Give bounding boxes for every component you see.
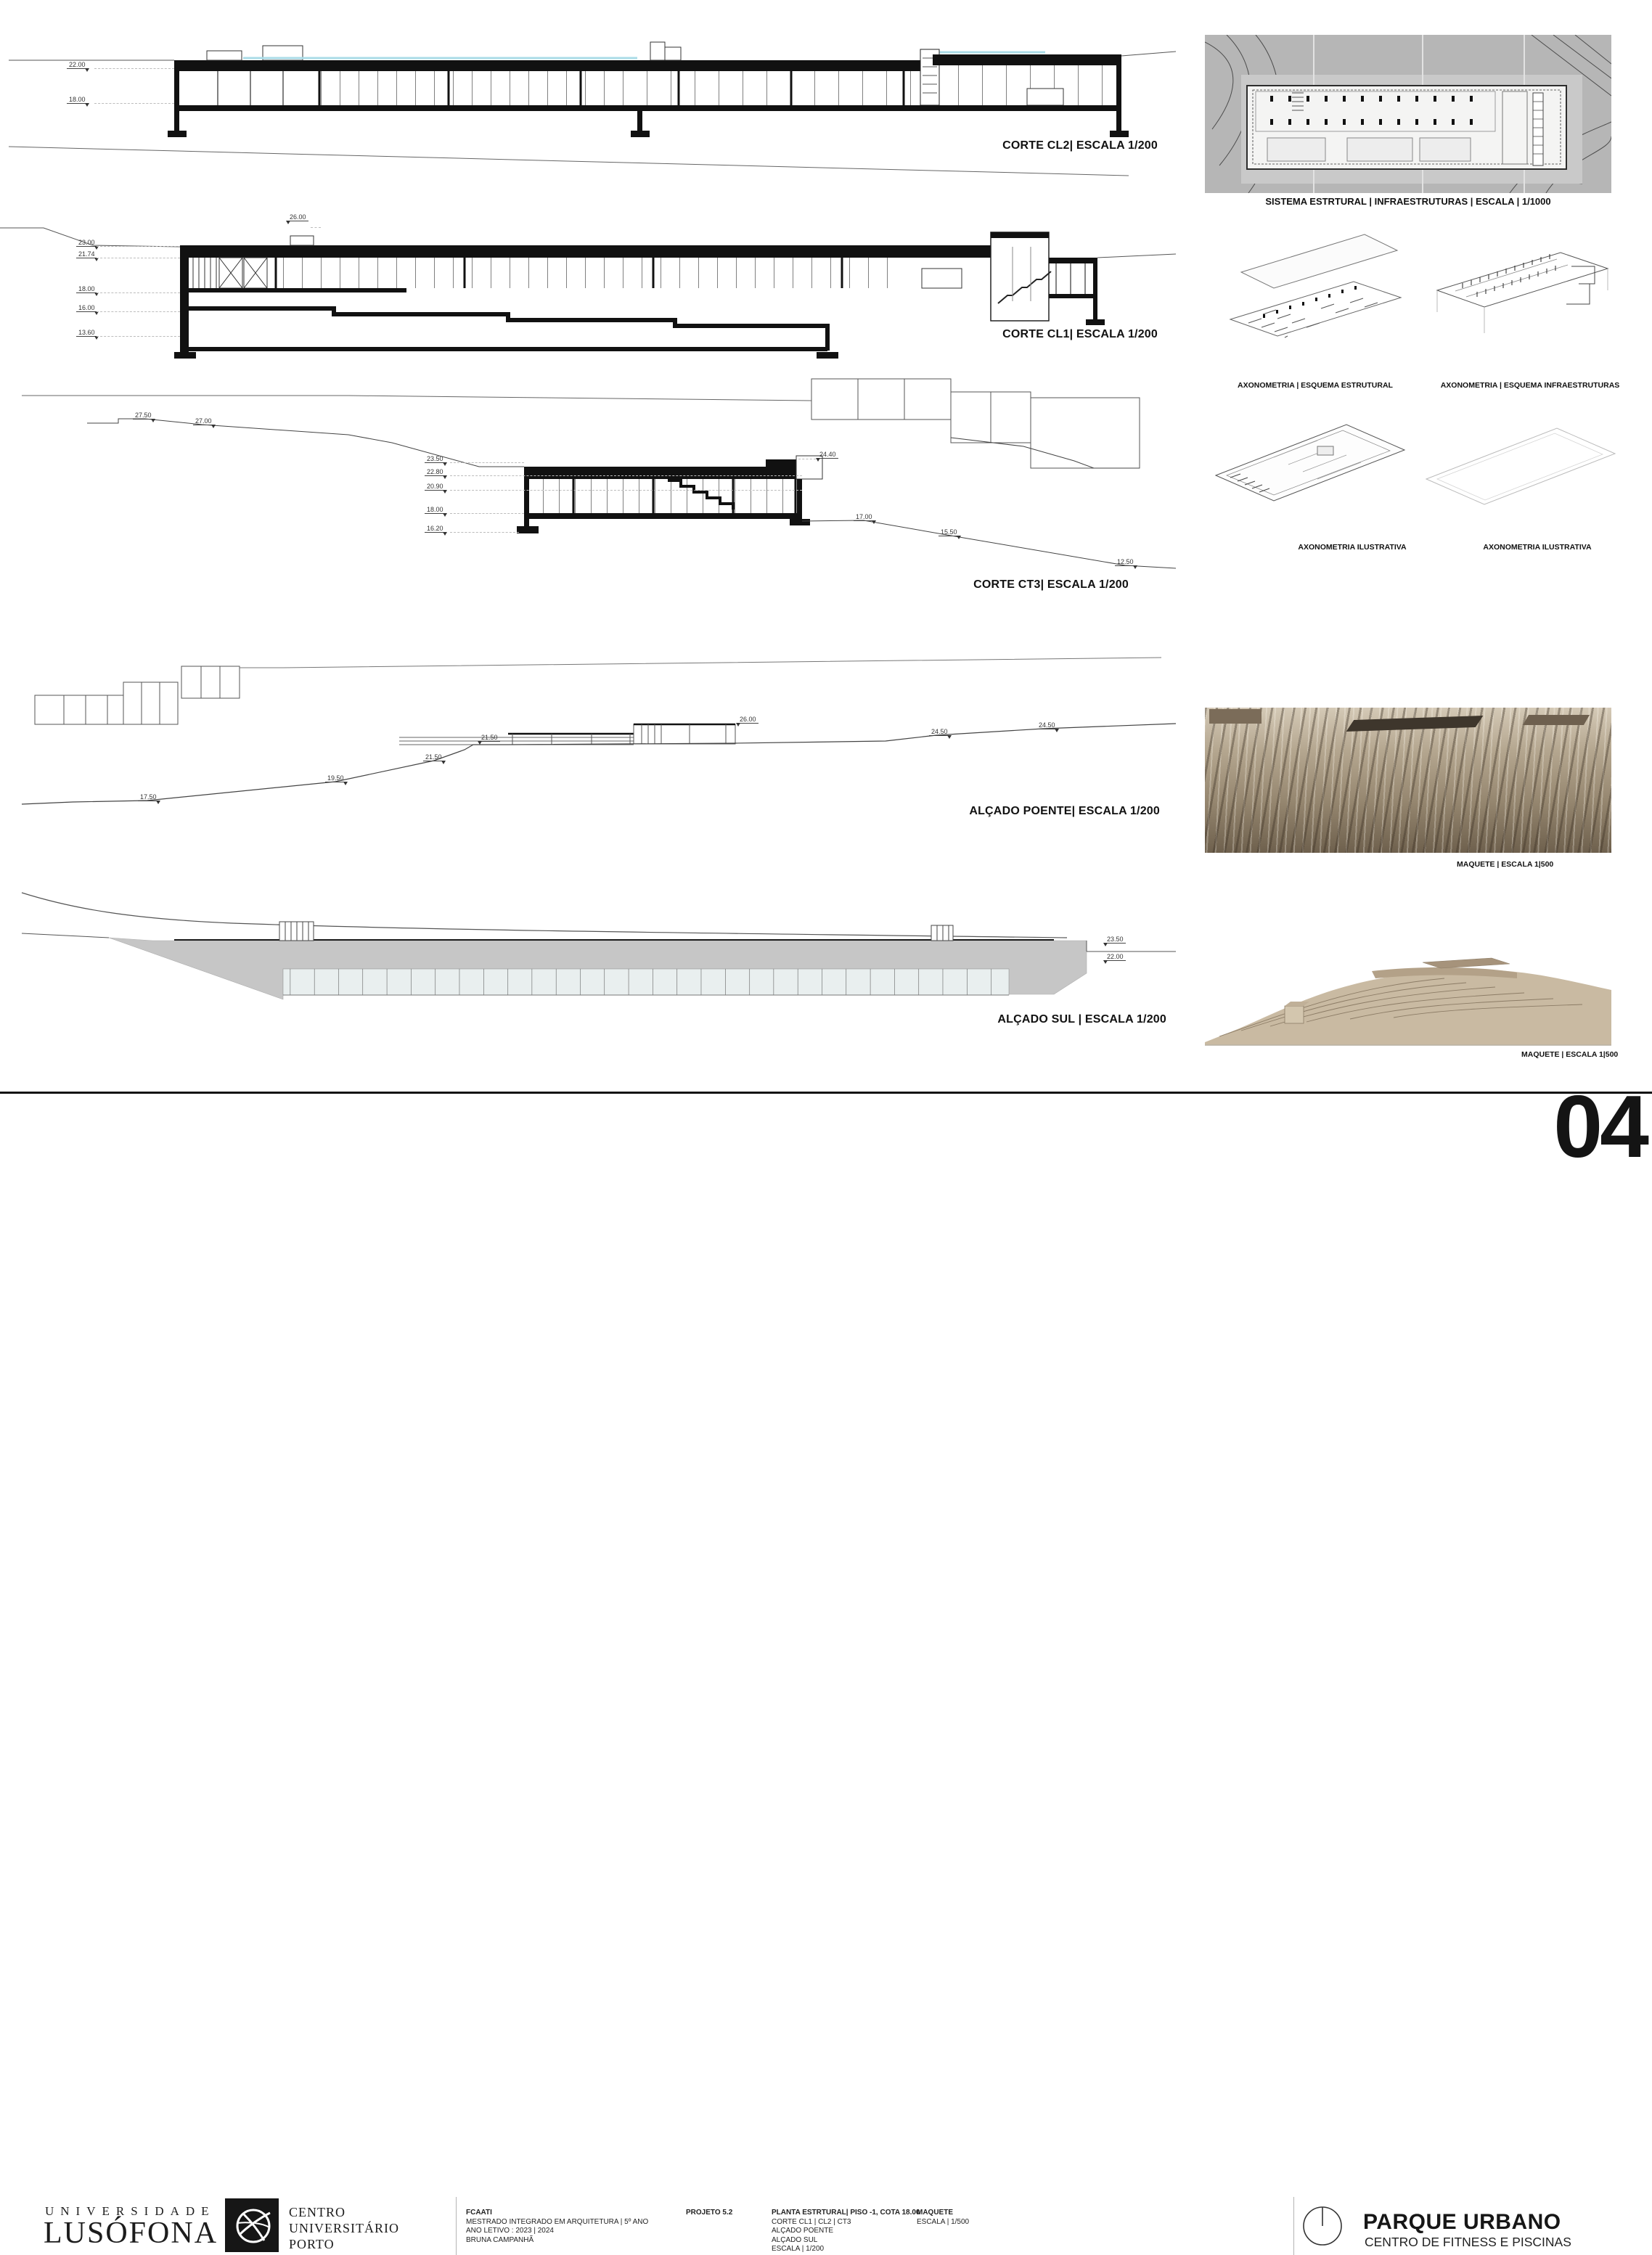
terrain-mark: 17.00 [854,513,875,521]
alcado-sul-drawing [0,871,1176,1060]
elevation-mark: 21.74 [76,250,97,258]
sistema-label: SISTEMA ESTRTURAL | INFRAESTRUTURAS | ES… [1265,196,1550,207]
model-terrace [1209,709,1262,724]
model-info-scale: ESCALA | 1/500 [917,2218,969,2227]
model-photo-1 [1205,708,1611,853]
elevation-mark: 26.00 [287,213,308,221]
model-info: MAQUETE ESCALA | 1/500 [917,2209,969,2227]
terrain-mark: 19.50 [325,774,346,782]
axonometria-ilustrativa-1 [1209,406,1412,541]
leader-line [94,103,174,104]
course-info: FCAATI MESTRADO INTEGRADO EM ARQUITETURA… [466,2209,648,2245]
leader-line [311,227,321,228]
elevation-mark: 23.50 [1105,936,1126,944]
elevation-mark: 23.50 [425,455,446,463]
leader-line [97,258,180,258]
elevation-mark: 22.00 [67,61,88,69]
axo-ilustrativa-1-label: AXONOMETRIA ILUSTRATIVA [1298,543,1406,552]
sheet-contents: PLANTA ESTRTURAL| PISO -1, COTA 18.00 CO… [772,2209,920,2254]
model-info-title: MAQUETE [917,2209,953,2217]
elevation-mark: 18.00 [67,96,88,104]
corte-ct3-drawing [0,377,1176,595]
terrain-mark: 21.50 [423,753,444,761]
terrain-mark: 15.50 [939,528,960,536]
leader-line [450,475,802,476]
model-roof-slab [1346,716,1482,732]
model-roof-slab [1523,715,1590,725]
leader-line [450,462,524,463]
elevation-mark: 16.00 [76,304,97,312]
elevation-mark: 16.20 [425,525,446,533]
corte-cl2-label: CORTE CL2| ESCALA 1/200 [1002,139,1158,152]
elevation-mark: 23.00 [76,239,97,247]
project-subtitle: CENTRO DE FITNESS E PISCINAS [1365,2235,1571,2250]
alcado-poente-label: ALÇADO POENTE| ESCALA 1/200 [969,805,1160,818]
sheet-number: 04 [1553,1086,1646,1167]
leader-line [798,459,816,459]
corte-cl1-label: CORTE CL1| ESCALA 1/200 [1002,328,1158,341]
axonometria-infraestruturas-diagram [1426,221,1615,367]
title-block: UNIVERSIDADE LUSÓFONA CENTRO UNIVERSITÁR… [0,1094,1652,1167]
elevation-mark: 18.00 [76,285,97,293]
maquete-2-label: MAQUETE | ESCALA 1|500 [1521,1050,1618,1059]
elevation-mark: 13.60 [76,329,97,337]
axo-estrutural-label: AXONOMETRIA | ESQUEMA ESTRUTURAL [1238,381,1393,390]
corte-ct3-label: CORTE CT3| ESCALA 1/200 [973,578,1129,592]
centro-universitario-porto: CENTRO UNIVERSITÁRIO PORTO [289,2204,399,2252]
sistema-estrutural-plan [1205,35,1611,193]
course-line: ANO LETIVO : 2023 | 2024 [466,2227,648,2236]
corte-cl2-drawing [0,22,1176,189]
terrain-mark: 12.50 [1115,558,1136,566]
axonometria-ilustrativa-2 [1415,406,1619,541]
corte-cl1-drawing [0,218,1176,363]
leader-line [450,490,802,491]
maquete-1-label: MAQUETE | ESCALA 1|500 [1457,860,1553,869]
project-title: PARQUE URBANO [1363,2210,1561,2235]
globe-icon [225,2198,279,2252]
axonometria-estrutural-diagram [1219,221,1408,367]
axo-infra-label: AXONOMETRIA | ESQUEMA INFRAESTRUTURAS [1441,381,1620,390]
terrain-mark: 24.50 [929,728,950,736]
elevation-mark: 22.00 [1105,953,1126,961]
project-number-text: PROJETO 5.2 [686,2209,732,2217]
university-name-line2: LUSÓFONA [44,2216,218,2251]
leader-line [97,311,180,312]
lusofona-globe-logo [225,2198,279,2252]
leader-line [97,336,180,337]
course-title: FCAATI [466,2209,492,2217]
course-line: MESTRADO INTEGRADO EM ARQUITETURA | 5º A… [466,2218,648,2227]
model-photo-2 [1205,920,1611,1047]
centro-line: UNIVERSITÁRIO [289,2220,399,2236]
model-mound [1205,920,1611,1047]
terrain-mark: 21.50 [479,734,500,742]
presentation-board: { "drawings": { "corte_cl2": { "label": … [0,0,1652,1167]
leader-line [450,513,524,514]
terrain-mark: 17.50 [138,793,159,801]
sheet-contents-line: ALÇADO SUL [772,2236,920,2246]
sheet-contents-title: PLANTA ESTRTURAL| PISO -1, COTA 18.00 [772,2209,920,2217]
terrain-mark: 26.00 [737,716,758,724]
sheet-contents-line: CORTE CL1 | CL2 | CT3 [772,2218,920,2227]
sheet-scale: ESCALA | 1/200 [772,2245,920,2254]
elevation-mark: 20.90 [425,483,446,491]
elevation-mark: 24.40 [817,451,838,459]
divider [1293,2197,1294,2255]
elevation-mark: 18.00 [425,506,446,514]
alcado-poente-drawing [0,639,1176,827]
leader-line [97,246,180,247]
leader-line [97,292,180,293]
divider [456,2197,457,2255]
sheet-contents-line: ALÇADO POENTE [772,2227,920,2236]
terrain-mark: 27.00 [193,417,214,425]
centro-line: CENTRO [289,2204,399,2220]
centro-line: PORTO [289,2236,399,2252]
leader-line [94,68,174,69]
project-number: PROJETO 5.2 [686,2209,732,2218]
author-name: BRUNA CAMPANHÃ [466,2236,648,2246]
leader-line [450,532,519,533]
elevation-mark: 22.80 [425,468,446,476]
terrain-mark: 24.50 [1036,721,1058,729]
axo-ilustrativa-2-label: AXONOMETRIA ILUSTRATIVA [1483,543,1591,552]
terrain-mark: 27.50 [133,412,154,420]
alcado-sul-label: ALÇADO SUL | ESCALA 1/200 [997,1013,1166,1026]
clock-icon [1302,2206,1343,2246]
